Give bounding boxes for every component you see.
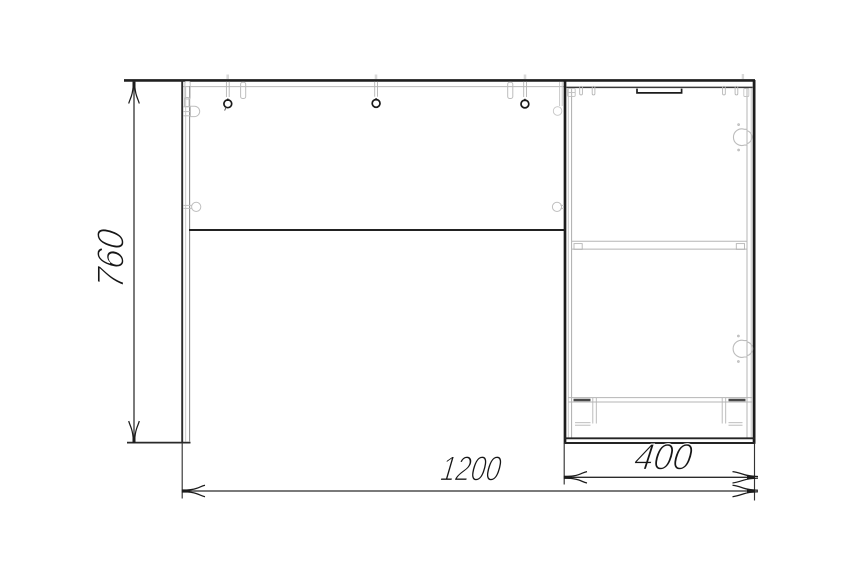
svg-text:1200: 1200 [438, 449, 504, 488]
svg-text:400: 400 [632, 436, 695, 478]
svg-text:760: 760 [89, 226, 131, 291]
